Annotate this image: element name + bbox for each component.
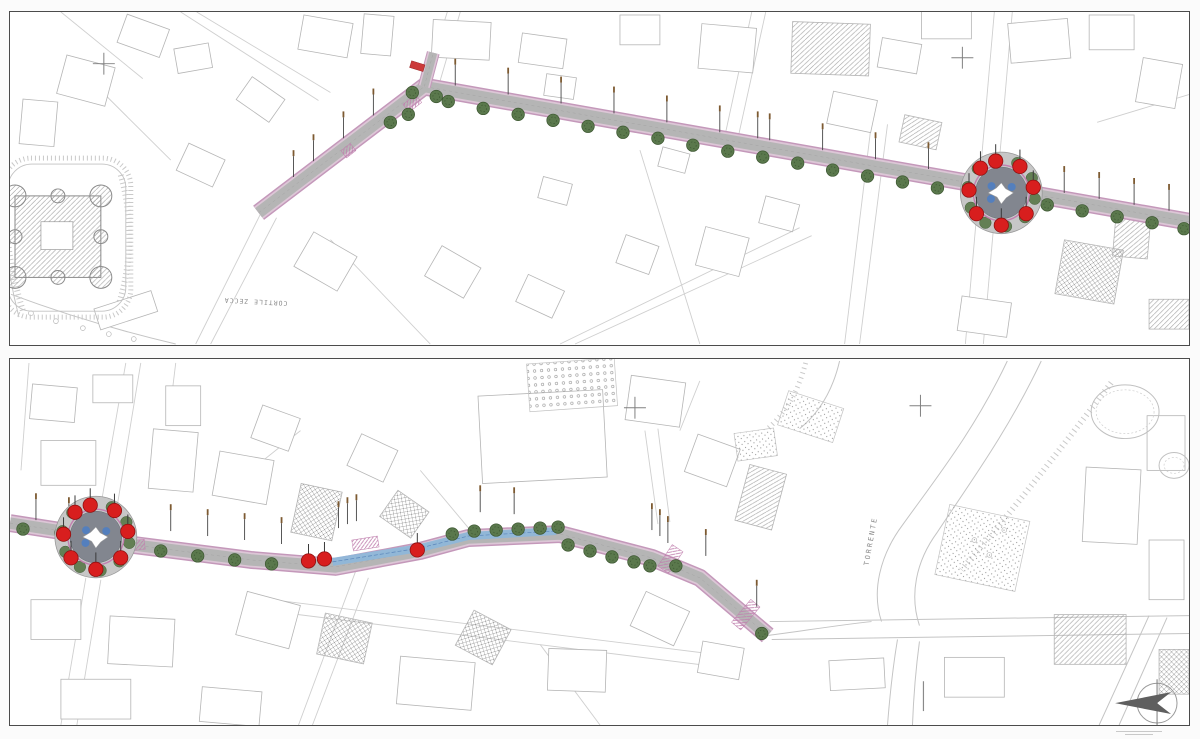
tree-symbol bbox=[534, 522, 547, 535]
tree-symbol bbox=[628, 556, 641, 569]
avenue bbox=[259, 53, 1189, 222]
map-labels: TORRENTE bbox=[863, 516, 880, 566]
tree-symbol bbox=[791, 157, 804, 170]
tree-symbol bbox=[756, 151, 769, 164]
tree-symbol bbox=[644, 560, 657, 573]
tree-symbol bbox=[384, 116, 397, 129]
red-tree-symbol bbox=[107, 494, 121, 518]
red-tree-symbol bbox=[301, 544, 315, 568]
tree-symbol bbox=[826, 164, 839, 177]
roundabout bbox=[55, 488, 137, 578]
tree-symbol bbox=[562, 539, 575, 552]
castle bbox=[10, 158, 131, 317]
map-labels: CORTILE ZECCA bbox=[224, 296, 288, 307]
tree-symbol bbox=[606, 551, 619, 564]
red-tree-symbol bbox=[973, 151, 987, 175]
plan-panel-top: CORTILE ZECCA bbox=[9, 11, 1190, 346]
tree-symbol bbox=[931, 182, 944, 195]
plan-panel-bottom: TORRENTE bbox=[9, 358, 1190, 726]
tree-symbol bbox=[1178, 222, 1189, 235]
tree-symbol bbox=[547, 114, 560, 127]
red-tree-symbol bbox=[83, 488, 97, 512]
tree-symbol bbox=[687, 139, 700, 152]
tree-symbol bbox=[896, 176, 909, 189]
tree-symbol bbox=[670, 560, 683, 573]
tree-symbol bbox=[477, 102, 490, 115]
tree-symbol bbox=[617, 126, 630, 139]
red-tree-symbol bbox=[410, 533, 424, 557]
tree-symbol bbox=[17, 523, 30, 536]
tree-symbol bbox=[228, 554, 241, 567]
tree-symbol bbox=[755, 627, 768, 640]
tree-symbol bbox=[512, 523, 525, 536]
tree-symbol bbox=[584, 545, 597, 558]
tree-symbol bbox=[191, 550, 204, 563]
roundabouts bbox=[960, 144, 1042, 233]
tree-symbol bbox=[442, 95, 455, 108]
map-label: TORRENTE bbox=[863, 516, 880, 566]
tree-symbol bbox=[490, 524, 503, 537]
slope-hachures bbox=[768, 363, 1111, 570]
tree-symbol bbox=[402, 108, 415, 121]
red-tree-symbol bbox=[68, 495, 82, 519]
tree-symbol bbox=[721, 145, 734, 158]
tree-symbol bbox=[430, 90, 443, 103]
red-paved-marks bbox=[410, 61, 425, 72]
tree-symbol bbox=[468, 525, 481, 538]
tree-symbol bbox=[1076, 205, 1089, 218]
tree-symbol bbox=[1146, 216, 1159, 229]
roundabouts bbox=[55, 488, 137, 578]
tree-symbol bbox=[652, 132, 665, 145]
tree-symbol bbox=[1111, 211, 1124, 224]
red-tree-symbol bbox=[317, 542, 331, 566]
tree-symbol bbox=[154, 545, 167, 558]
tree-symbol bbox=[861, 170, 874, 183]
north-arrow-icon bbox=[1115, 679, 1177, 725]
roundabout bbox=[960, 144, 1042, 233]
tree-symbol bbox=[1041, 199, 1054, 212]
tree-symbol bbox=[552, 521, 565, 534]
corner-caption-mark bbox=[1116, 731, 1164, 738]
tree-symbol bbox=[512, 108, 525, 121]
red-tree-symbol bbox=[1013, 150, 1027, 174]
tree-symbol bbox=[406, 86, 419, 99]
tree-symbol bbox=[582, 120, 595, 133]
map-label: CORTILE ZECCA bbox=[224, 296, 288, 307]
tree-symbol bbox=[265, 558, 278, 571]
tree-symbol bbox=[446, 528, 459, 541]
